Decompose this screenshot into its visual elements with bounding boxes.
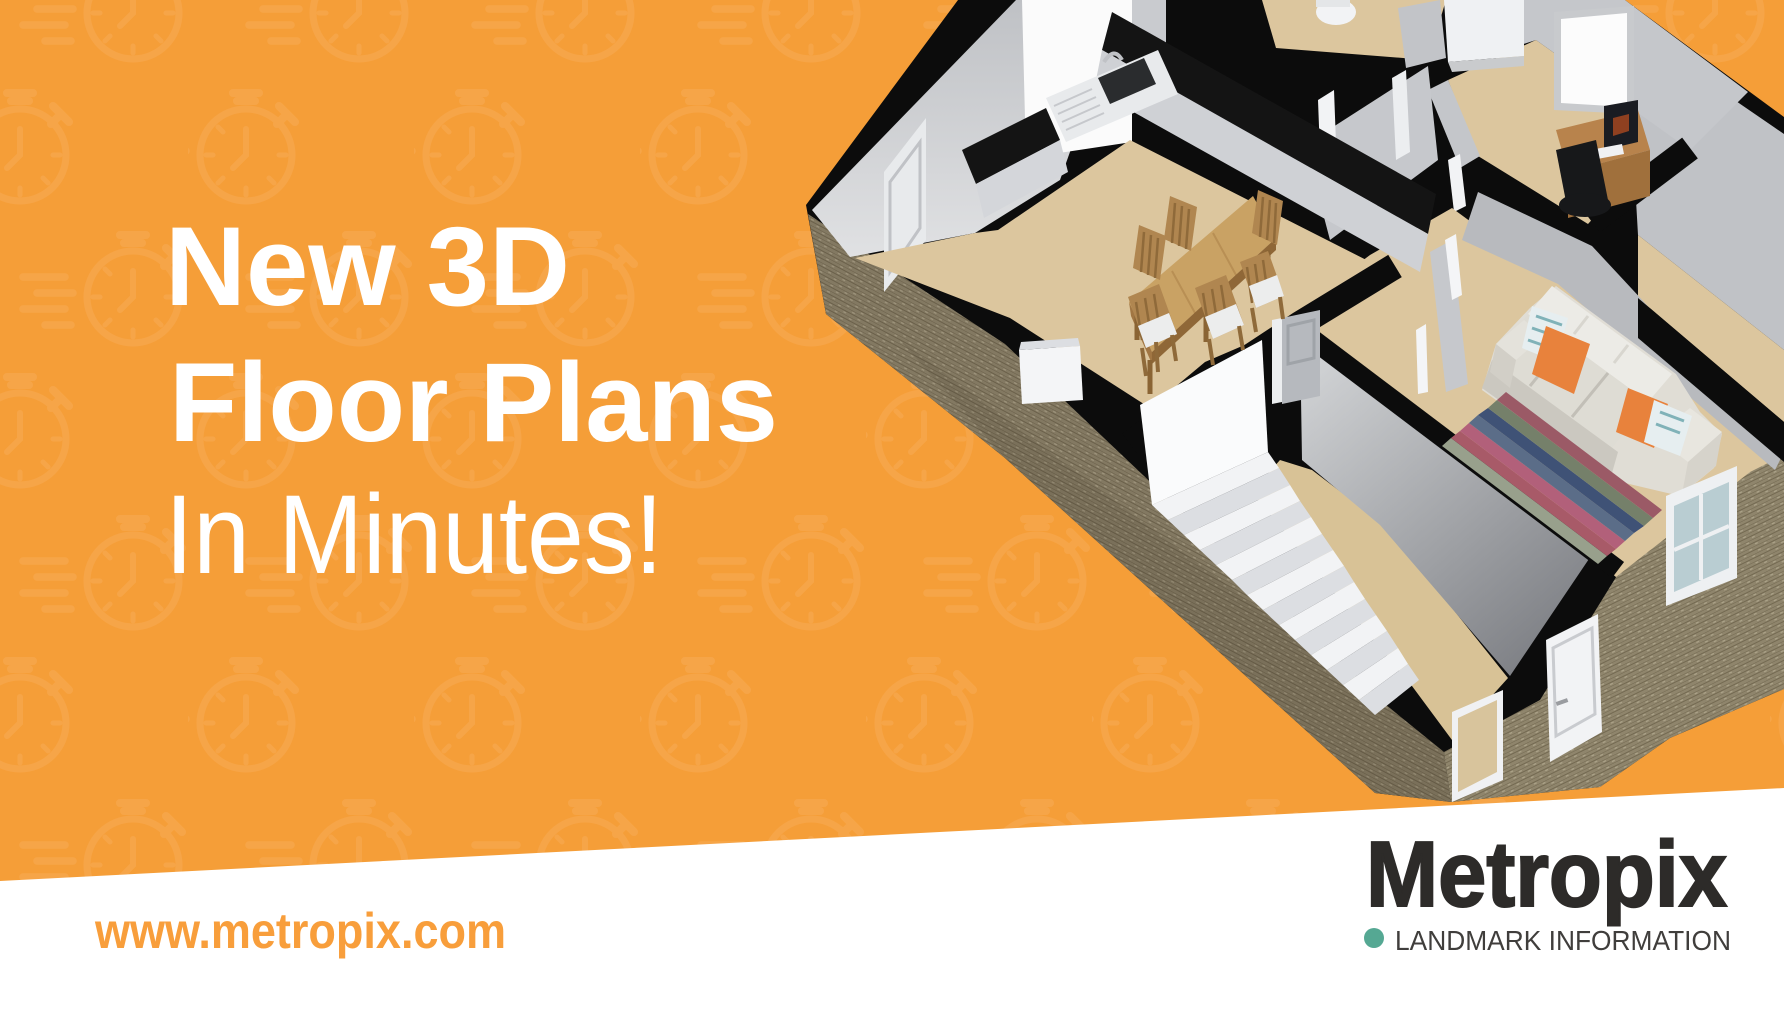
svg-text:Floor Plans: Floor Plans xyxy=(169,340,778,465)
svg-text:LANDMARK INFORMATION: LANDMARK INFORMATION xyxy=(1395,925,1731,956)
svg-text:www.metropix.com: www.metropix.com xyxy=(94,903,506,959)
svg-text:In Minutes!: In Minutes! xyxy=(165,472,663,597)
svg-text:Metropix: Metropix xyxy=(1366,822,1727,926)
svg-text:New 3D: New 3D xyxy=(165,204,570,329)
